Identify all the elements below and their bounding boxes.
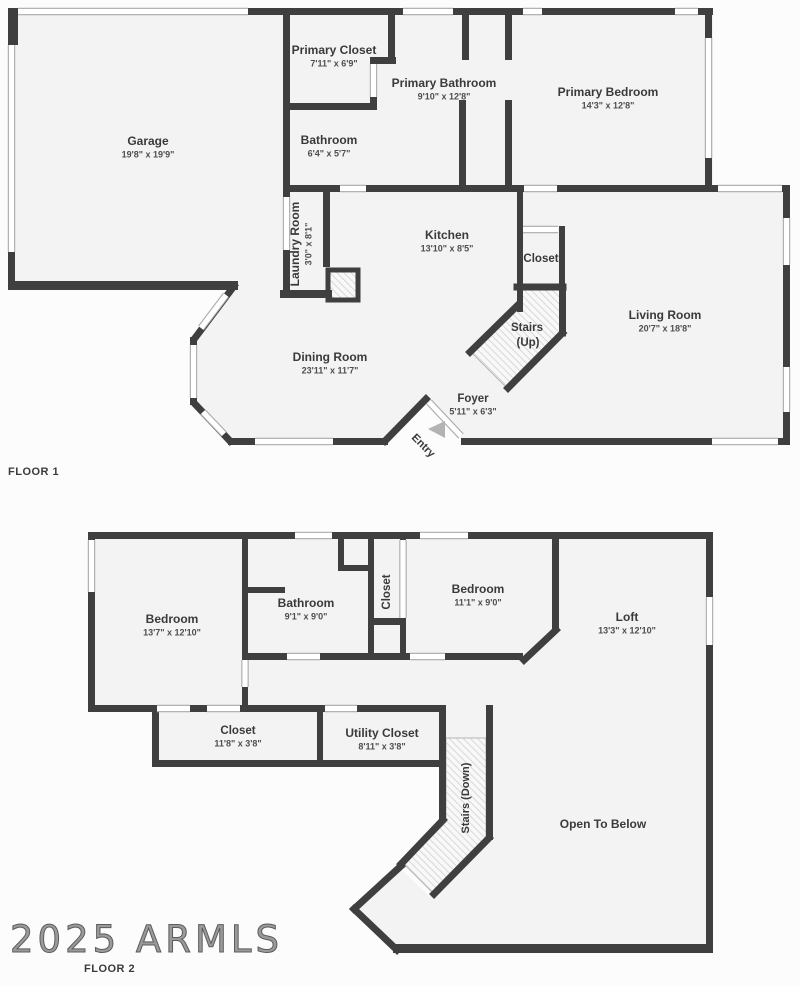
room-dims-kitchen: 13'10" x 8'5" — [421, 243, 474, 253]
wall — [283, 185, 340, 192]
room-dims-bathroom-1: 6'4" x 5'7" — [308, 148, 351, 158]
wall — [338, 565, 372, 571]
wall — [372, 618, 406, 625]
wall — [559, 226, 565, 290]
wall — [366, 185, 524, 192]
wall — [505, 12, 512, 60]
wall — [240, 705, 325, 712]
room-dims-loft: 13'3" x 12'10" — [598, 625, 656, 635]
room-dims-bathroom-2: 9'1" x 9'0" — [285, 611, 328, 621]
room-dims-bedroom-1: 13'7" x 12'10" — [143, 627, 201, 637]
room-label-stairs-down: Stairs (Down) — [460, 762, 472, 833]
wall — [323, 185, 330, 267]
wall — [248, 587, 285, 593]
room-label-utility-closet: Utility Closet — [345, 726, 418, 740]
room-interior — [283, 8, 713, 192]
wall — [320, 653, 410, 660]
wall — [368, 532, 374, 660]
room-label-garage: Garage — [127, 134, 169, 148]
floorplan-canvas: Garage19'8" x 19'9"Primary Closet7'11" x… — [0, 0, 800, 986]
room-label-stairs-up: Stairs — [511, 322, 543, 334]
room-label-entry: Entry — [409, 432, 438, 461]
room-dims-utility-closet: 8'11" x 3'8" — [358, 741, 405, 751]
floorplan-svg: Garage19'8" x 19'9"Primary Closet7'11" x… — [0, 0, 800, 986]
wall — [338, 539, 344, 568]
room-label-living-room: Living Room — [629, 308, 702, 322]
room-label-primary-closet: Primary Closet — [292, 43, 377, 57]
room-dims-dining-room: 23'11" x 11'7" — [302, 365, 359, 375]
floor1-label: FLOOR 1 — [8, 466, 59, 478]
wall — [486, 705, 493, 840]
wall — [370, 57, 396, 64]
wall — [283, 103, 373, 110]
wall — [783, 185, 790, 218]
watermark: 2025 ARMLS — [10, 918, 283, 961]
wall — [283, 8, 290, 197]
wall — [388, 8, 395, 60]
room-dims-primary-bedroom: 14'3" x 12'8" — [582, 100, 635, 110]
wall — [705, 158, 712, 192]
wall — [783, 265, 790, 367]
room-label-bathroom-1: Bathroom — [301, 133, 358, 147]
room-label-bedroom-1: Bedroom — [146, 612, 199, 626]
wall — [190, 705, 207, 712]
room-label-closet-col: Closet — [381, 574, 393, 609]
room-dims-closet-row: 11'8" x 3'8" — [214, 738, 261, 748]
wall — [242, 687, 248, 712]
room-label2-stairs-up: (Up) — [517, 337, 540, 349]
room-label-primary-bedroom: Primary Bedroom — [558, 85, 659, 99]
wall — [459, 100, 466, 185]
wall — [357, 705, 446, 712]
room-label-dining-room: Dining Room — [293, 350, 368, 364]
room-dims-garage: 19'8" x 19'9" — [122, 149, 175, 159]
wall — [505, 100, 512, 185]
wall — [88, 705, 157, 712]
wall — [283, 8, 713, 15]
wall — [242, 532, 248, 660]
room-dims-foyer: 5'11" x 6'3" — [449, 406, 496, 416]
room-label-bathroom-2: Bathroom — [278, 596, 335, 610]
wall — [439, 705, 446, 822]
room-dims-living-room: 20'7" x 18'8" — [639, 323, 692, 333]
wall — [400, 532, 406, 540]
hatch-box — [328, 270, 358, 300]
wall — [462, 12, 469, 60]
room-label-closet-f1: Closet — [523, 253, 558, 265]
wall — [393, 944, 713, 953]
room-label-kitchen: Kitchen — [425, 228, 469, 242]
wall — [445, 653, 523, 660]
wall — [280, 290, 332, 298]
room-dims-laundry-room: 3'0" x 8'1" — [303, 223, 313, 266]
wall — [552, 532, 559, 630]
wall — [706, 645, 713, 953]
room-label-primary-bathroom: Primary Bathroom — [392, 76, 497, 90]
room-label-loft: Loft — [616, 610, 639, 624]
room-label-foyer: Foyer — [457, 393, 489, 405]
wall — [242, 653, 287, 660]
room-dims-primary-bathroom: 9'10" x 12'8" — [418, 91, 471, 101]
room-label-laundry-room: Laundry Room — [288, 202, 302, 287]
room-label-open-to-below: Open To Below — [560, 817, 647, 831]
floor2-label: FLOOR 2 — [84, 963, 135, 975]
wall — [517, 185, 523, 312]
wall — [8, 8, 18, 45]
entry-arrow-icon — [428, 421, 445, 438]
wall — [8, 281, 238, 290]
room-dims-primary-closet: 7'11" x 6'9" — [310, 58, 357, 68]
wall — [705, 8, 712, 38]
wall — [152, 705, 159, 767]
wall — [706, 532, 713, 597]
room-label-closet-row: Closet — [220, 725, 255, 737]
room-label-bedroom-2: Bedroom — [452, 582, 505, 596]
wall — [317, 705, 323, 767]
wall — [152, 760, 446, 767]
room-dims-bedroom-2: 11'1" x 9'0" — [454, 597, 501, 607]
